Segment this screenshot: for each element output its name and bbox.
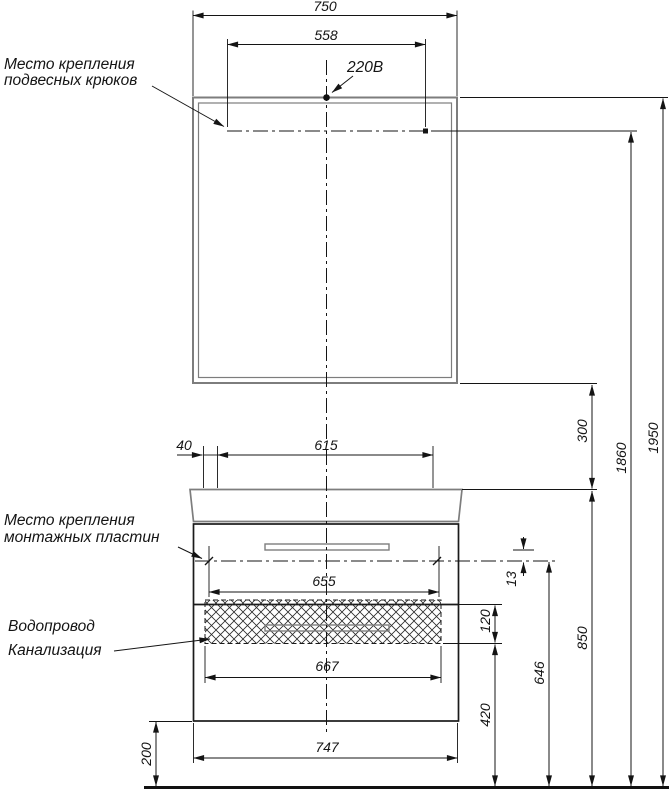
plates-label-line1: Место крепления [4, 512, 135, 529]
water-label-line1: Водопровод [8, 618, 95, 635]
plates-label-line2: монтажных пластин [4, 529, 160, 546]
dim-667: 667 [315, 658, 340, 674]
dim-850: 850 [574, 626, 590, 650]
dim-1950: 1950 [645, 422, 661, 453]
pipe-zone-hatch [205, 600, 441, 644]
dim-13: 13 [503, 571, 519, 587]
mirror [193, 98, 457, 384]
dim-200: 200 [138, 742, 154, 767]
mirror-outer-frame [193, 98, 457, 384]
power-label: 220В [346, 59, 383, 76]
drawing-svg: 750 558 40 615 655 667 747 200 120 420 1… [0, 0, 669, 793]
power-leader [332, 76, 353, 93]
mirror-inner-frame [199, 103, 452, 378]
dim-558: 558 [314, 27, 338, 43]
dim-655: 655 [312, 573, 336, 589]
dim-615: 615 [314, 437, 338, 453]
dim-747: 747 [315, 739, 340, 755]
dim-40: 40 [176, 437, 192, 453]
power-outlet-point [323, 94, 330, 101]
hooks-label-line2: подвесных крюков [4, 72, 137, 89]
installation-drawing: 750 558 40 615 655 667 747 200 120 420 1… [0, 0, 669, 793]
dim-646: 646 [531, 661, 547, 685]
hooks-leader [152, 86, 224, 127]
dim-300: 300 [574, 419, 590, 443]
dim-750: 750 [313, 0, 337, 14]
dim-120: 120 [477, 609, 493, 633]
hooks-label-line1: Место крепления [4, 56, 135, 73]
water-label-line2: Канализация [8, 642, 102, 659]
dim-420: 420 [477, 703, 493, 727]
hook-end-tick [423, 129, 428, 134]
dim-1860: 1860 [613, 442, 629, 473]
